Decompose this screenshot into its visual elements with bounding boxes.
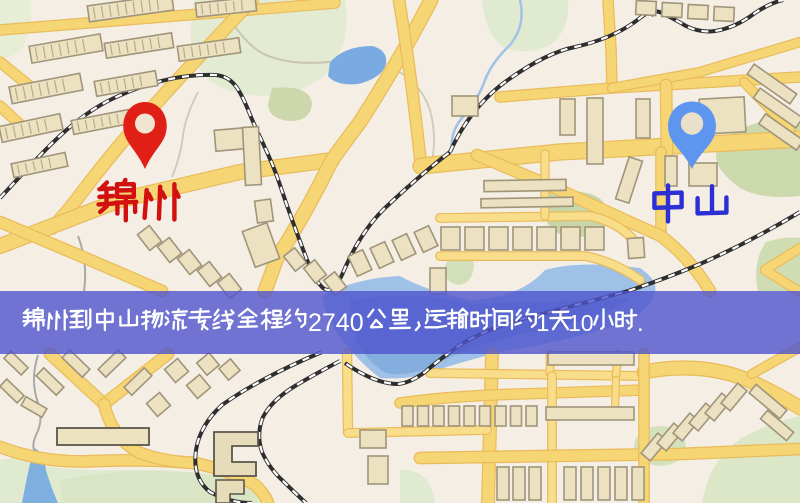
svg-text:2740: 2740 xyxy=(308,309,364,337)
svg-text:10: 10 xyxy=(568,310,594,336)
svg-text:1: 1 xyxy=(536,310,549,337)
svg-text:.: . xyxy=(637,310,644,337)
